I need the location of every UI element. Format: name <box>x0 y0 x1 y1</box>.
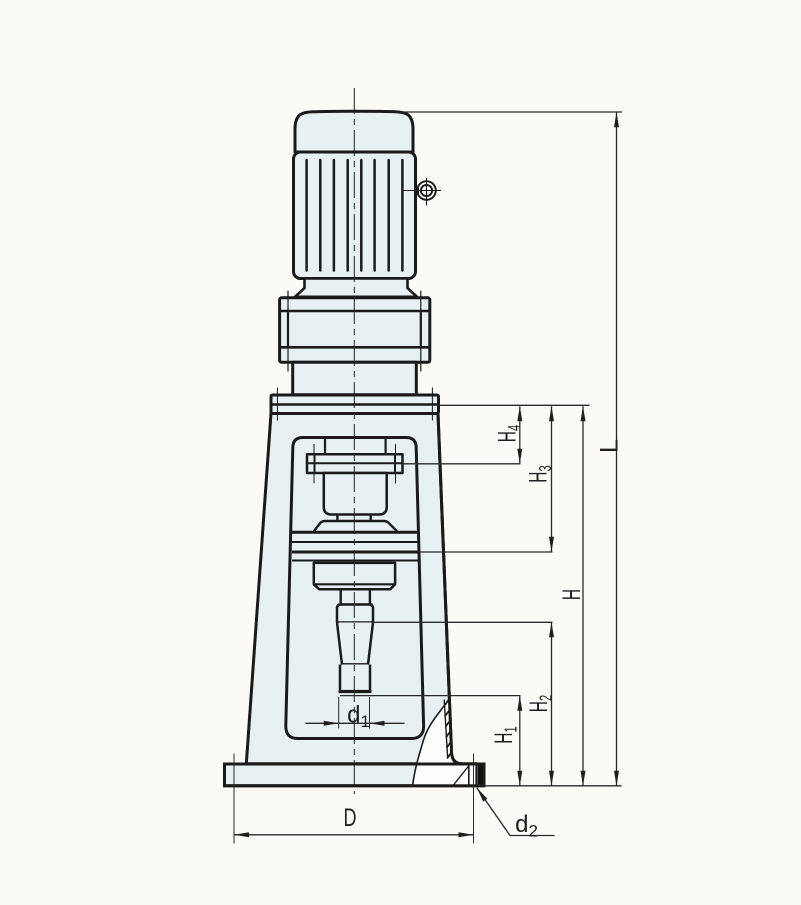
svg-text:L: L <box>596 439 624 453</box>
svg-text:D: D <box>344 803 357 832</box>
svg-text:H: H <box>558 589 586 600</box>
